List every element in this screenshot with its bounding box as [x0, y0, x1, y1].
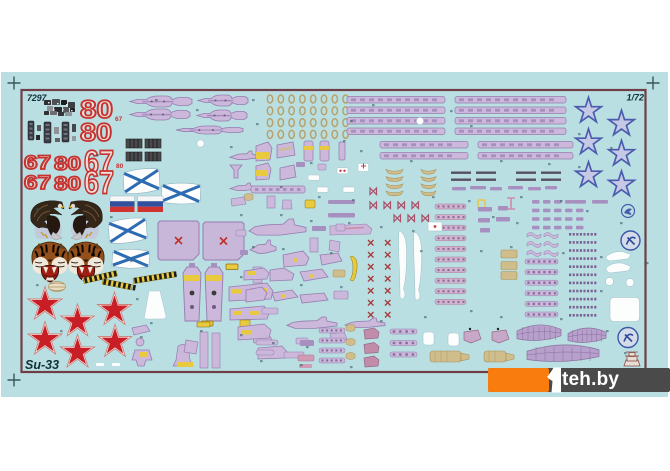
svg-text:80: 80 — [54, 153, 81, 175]
svg-text:67: 67 — [84, 165, 114, 201]
svg-text:teh.by: teh.by — [562, 369, 619, 390]
svg-text:67: 67 — [115, 116, 123, 123]
svg-text:80: 80 — [80, 119, 112, 147]
svg-text:1/72: 1/72 — [626, 93, 644, 103]
svg-text:80: 80 — [116, 163, 124, 170]
svg-text:67: 67 — [24, 152, 51, 174]
svg-text:67: 67 — [24, 172, 51, 194]
svg-text:80: 80 — [54, 173, 81, 195]
svg-text:Su-33: Su-33 — [25, 358, 59, 372]
